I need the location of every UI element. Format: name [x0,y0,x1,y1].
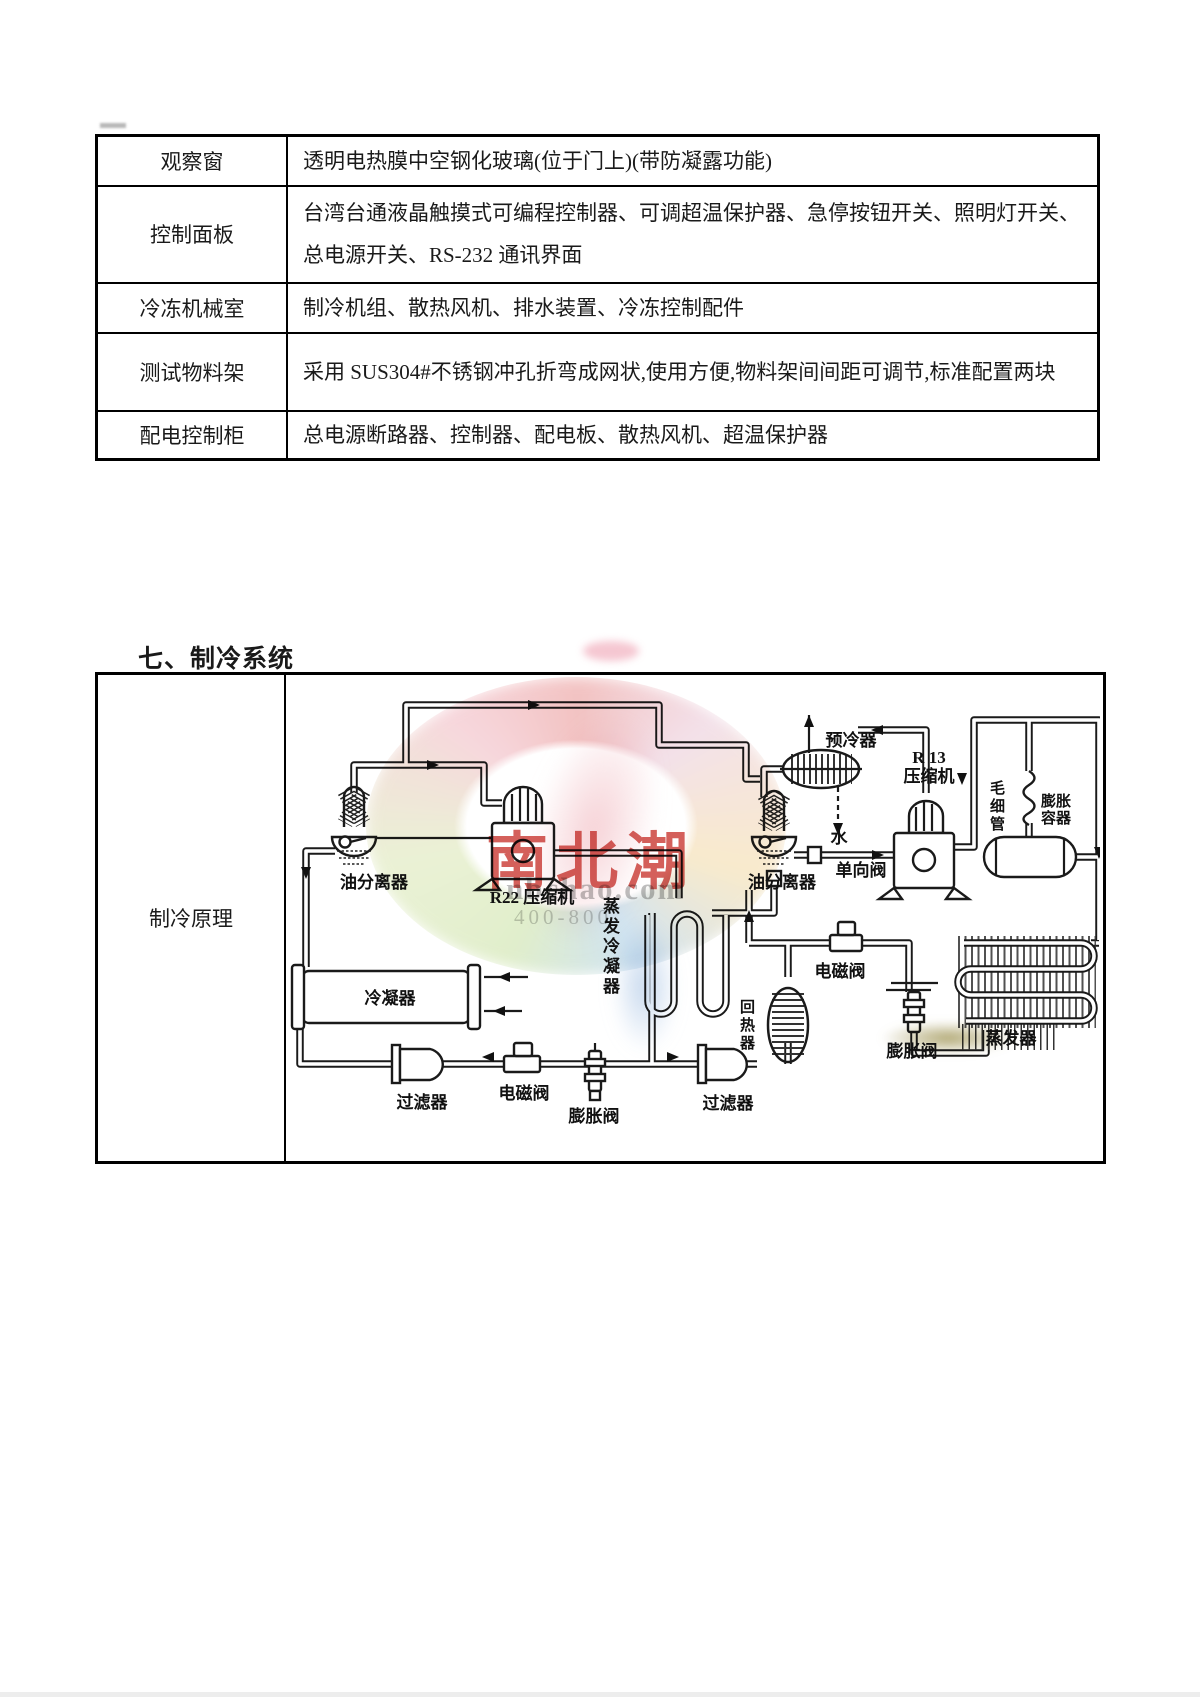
label-expvessel-line1: 膨胀 [1034,794,1078,811]
spec-row-label: 冷冻机械室 [97,283,288,333]
label-r13-compressor: R 13 压缩机 [884,748,974,786]
label-expvalve-bottom: 膨胀阀 [554,1107,634,1126]
refrigeration-schematic [286,675,1100,1157]
label-oil-separator-left: 油分离器 [326,873,422,892]
precooler-coil [780,750,862,788]
label-water: 水 [829,828,849,847]
label-regenerator: 回热器 [736,993,755,1059]
filter-left [392,1045,443,1083]
label-solenoid-bottom: 电磁阀 [484,1084,564,1103]
label-filter-left: 过滤器 [382,1093,462,1112]
spec-row-value: 台湾台通液晶触摸式可编程控制器、可调超温保护器、急停按钮开关、照明灯开关、总电源… [287,186,1099,283]
document-page: 观察窗 透明电热膜中空钢化玻璃(位于门上)(带防凝露功能) 控制面板 台湾台通液… [0,0,1200,1697]
spec-row-label: 配电控制柜 [97,411,288,460]
spec-row-label: 控制面板 [97,186,288,283]
evaporator-coil [958,943,1096,1037]
label-evap-condenser: 蒸发冷凝器 [600,891,619,1003]
table-row: 配电控制柜 总电源断路器、控制器、配电板、散热风机、超温保护器 [97,411,1099,460]
label-precooler: 预冷器 [806,731,896,750]
solenoid-valve-right [830,922,862,951]
spec-row-value: 采用 SUS304#不锈钢冲孔折弯成网状,使用方便,物料架间间距可调节,标准配置… [287,333,1099,411]
label-r13-line2: 压缩机 [884,767,974,786]
label-solenoid-right: 电磁阀 [800,962,880,981]
solenoid-valve-bottom [504,1043,540,1072]
table-row: 控制面板 台湾台通液晶触摸式可编程控制器、可调超温保护器、急停按钮开关、照明灯开… [97,186,1099,283]
spec-row-value: 总电源断路器、控制器、配电板、散热风机、超温保护器 [287,411,1099,460]
label-capillary: 毛细管 [986,774,1005,840]
expansion-valve-bottom [585,1043,605,1100]
label-expvalve-right: 膨胀阀 [872,1042,952,1061]
table-row: 测试物料架 采用 SUS304#不锈钢冲孔折弯成网状,使用方便,物料架间间距可调… [97,333,1099,411]
oil-separator-right [752,791,796,886]
table-row: 观察窗 透明电热膜中空钢化玻璃(位于门上)(带防凝露功能) [97,136,1099,186]
section-heading: 七、制冷系统 [138,639,294,675]
principle-row-label: 制冷原理 [98,675,286,1161]
oil-separator-left [332,787,376,864]
page-bottom-edge [0,1692,1200,1697]
label-oil-separator-right: 油分离器 [738,873,826,892]
label-check-valve: 单向阀 [824,861,898,880]
check-valve-fitting [808,847,821,863]
label-filter-right: 过滤器 [688,1094,768,1113]
label-condenser: 冷凝器 [344,989,436,1008]
expansion-valve-right [904,992,924,1032]
spec-table: 观察窗 透明电热膜中空钢化玻璃(位于门上)(带防凝露功能) 控制面板 台湾台通液… [95,134,1100,461]
spec-row-value: 透明电热膜中空钢化玻璃(位于门上)(带防凝露功能) [287,136,1099,186]
capillary-tube [1024,771,1035,825]
watermark-splatter [583,641,639,661]
label-expansion-vessel: 膨胀 容器 [1034,794,1078,828]
spec-row-label: 观察窗 [97,136,288,186]
label-r22-compressor: R22 压缩机 [474,888,590,907]
spec-row-label: 测试物料架 [97,333,288,411]
label-expvessel-line2: 容器 [1034,811,1078,828]
spec-row-value: 制冷机组、散热风机、排水装置、冷冻控制配件 [287,283,1099,333]
expansion-vessel-tank [984,837,1076,877]
label-evaporator: 蒸发器 [970,1029,1052,1048]
refrigeration-diagram: 南北潮 nbchao.com 400-800 预冷器 R 13 压缩机 毛细管 … [286,675,1103,1161]
page-smudge [100,123,126,128]
table-row: 冷冻机械室 制冷机组、散热风机、排水装置、冷冻控制配件 [97,283,1099,333]
principle-table: 制冷原理 [95,672,1106,1164]
label-r13-line1: R 13 [884,748,974,767]
